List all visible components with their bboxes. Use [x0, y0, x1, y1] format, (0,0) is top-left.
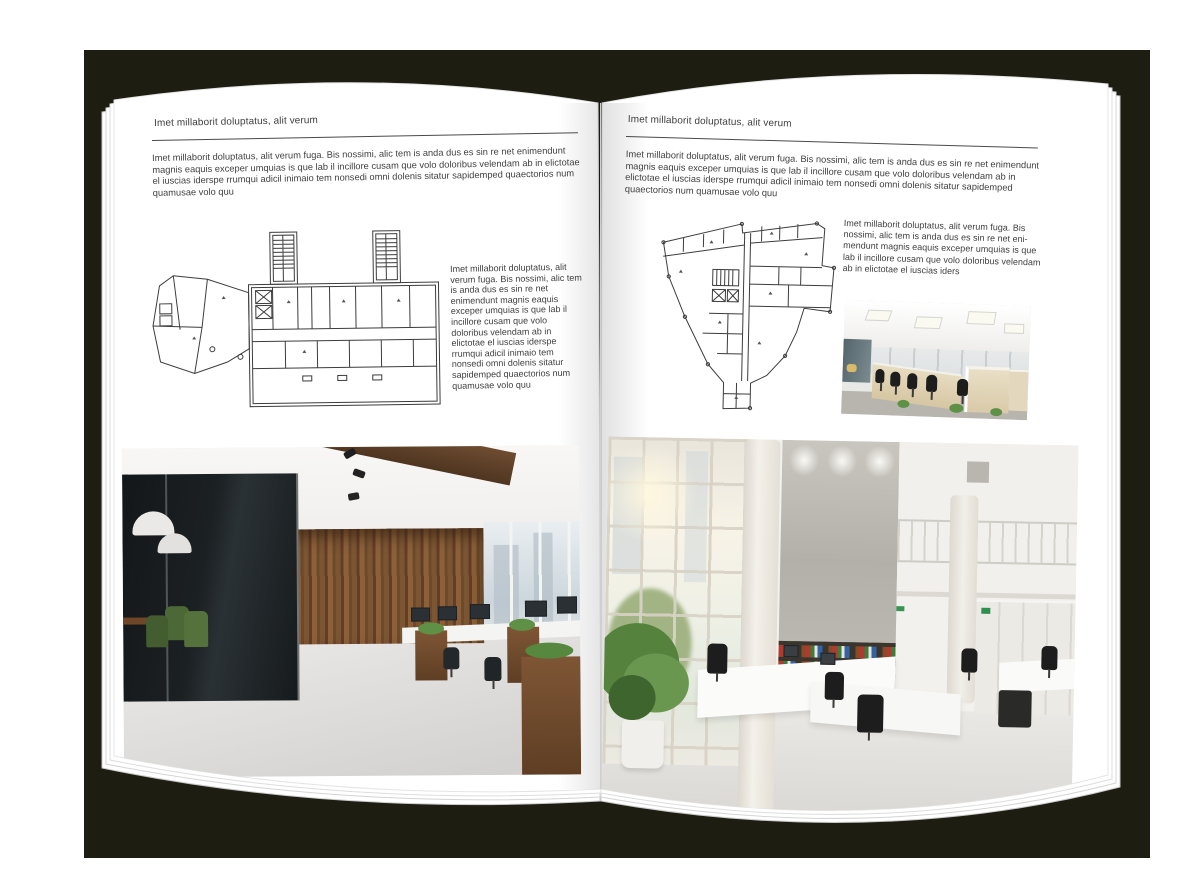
waste-bin: [998, 690, 1032, 728]
plant: [897, 400, 909, 408]
exit-sign: [981, 607, 990, 613]
page-title: Imet millaborit doluptatus, alit verum: [154, 115, 318, 129]
magazine-spread-mockup: Imet millaborit doluptatus, alit verum I…: [0, 0, 1200, 891]
floor-plan-drawing-right: [646, 212, 842, 416]
monitor: [820, 653, 835, 665]
office-chair: [890, 371, 901, 386]
wood-planter: [521, 656, 581, 775]
side-paragraph: Imet millaborit doluptatus, alit verum f…: [842, 218, 1049, 280]
side-paragraph: Imet millaborit doluptatus, alit verum f…: [450, 262, 585, 392]
potted-plant: [608, 675, 656, 721]
monitor: [525, 600, 547, 616]
header-rule: [152, 132, 578, 141]
office-chair: [707, 643, 728, 673]
exit-sign: [897, 606, 905, 611]
office-chair: [1041, 646, 1057, 670]
office-chair: [926, 374, 938, 391]
pendant-lamp: [133, 511, 175, 535]
office-photo-atrium: [601, 437, 1078, 818]
ceiling-light-panel: [865, 310, 893, 322]
header-rule: [626, 136, 1038, 149]
desk-partition-cabinets: [1009, 369, 1029, 410]
glass-seam: [165, 475, 169, 702]
structural-column: [947, 495, 979, 704]
office-chair: [857, 694, 884, 732]
office-chair: [961, 648, 977, 672]
wall-vent: [967, 461, 989, 482]
ceiling-light-panel: [1004, 324, 1024, 335]
lounge-chair: [847, 364, 857, 372]
office-photo-small-workstations: [841, 300, 1031, 420]
intro-paragraph: Imet millaborit doluptatus, alit verum f…: [625, 149, 1042, 207]
office-chair: [907, 373, 918, 389]
meeting-room-glass: [122, 474, 299, 702]
plant: [509, 618, 535, 630]
pendant-lamp: [157, 533, 191, 553]
intro-paragraph: Imet millaborit doluptatus, alit verum f…: [152, 145, 585, 199]
office-chair: [824, 671, 844, 699]
monitor: [438, 606, 457, 620]
downlight-glow: [864, 445, 895, 478]
desk-partition-cabinets: [964, 366, 1009, 414]
plant: [418, 622, 444, 634]
white-desk: [999, 659, 1075, 693]
floor-plan-drawing-left: [151, 226, 448, 420]
meeting-chair: [146, 615, 168, 647]
monitor: [783, 645, 798, 657]
page-title: Imet millaborit doluptatus, alit verum: [628, 114, 792, 130]
mezzanine-balcony: [897, 442, 1079, 599]
plant: [990, 408, 1002, 416]
downlight-glow: [789, 444, 820, 477]
balcony-railing: [898, 519, 1077, 565]
ceiling-light-panel: [914, 316, 943, 329]
office-chair: [443, 647, 459, 669]
lounge-glass: [842, 339, 871, 383]
window-mullions: [483, 521, 580, 637]
ceiling-light-panel: [966, 311, 996, 325]
monitor: [557, 597, 577, 614]
office-photo-wood-loft: [122, 445, 581, 777]
plant-pot: [621, 720, 664, 769]
office-chair: [484, 657, 501, 681]
downlight-glow: [826, 445, 857, 478]
meeting-chair: [184, 611, 208, 647]
structural-column: [738, 439, 780, 812]
office-chair: [876, 369, 885, 383]
city-window: [483, 521, 580, 637]
monitor: [411, 608, 430, 622]
monitor: [470, 604, 490, 619]
concrete-feature-wall: [779, 440, 900, 643]
office-chair: [957, 379, 969, 396]
